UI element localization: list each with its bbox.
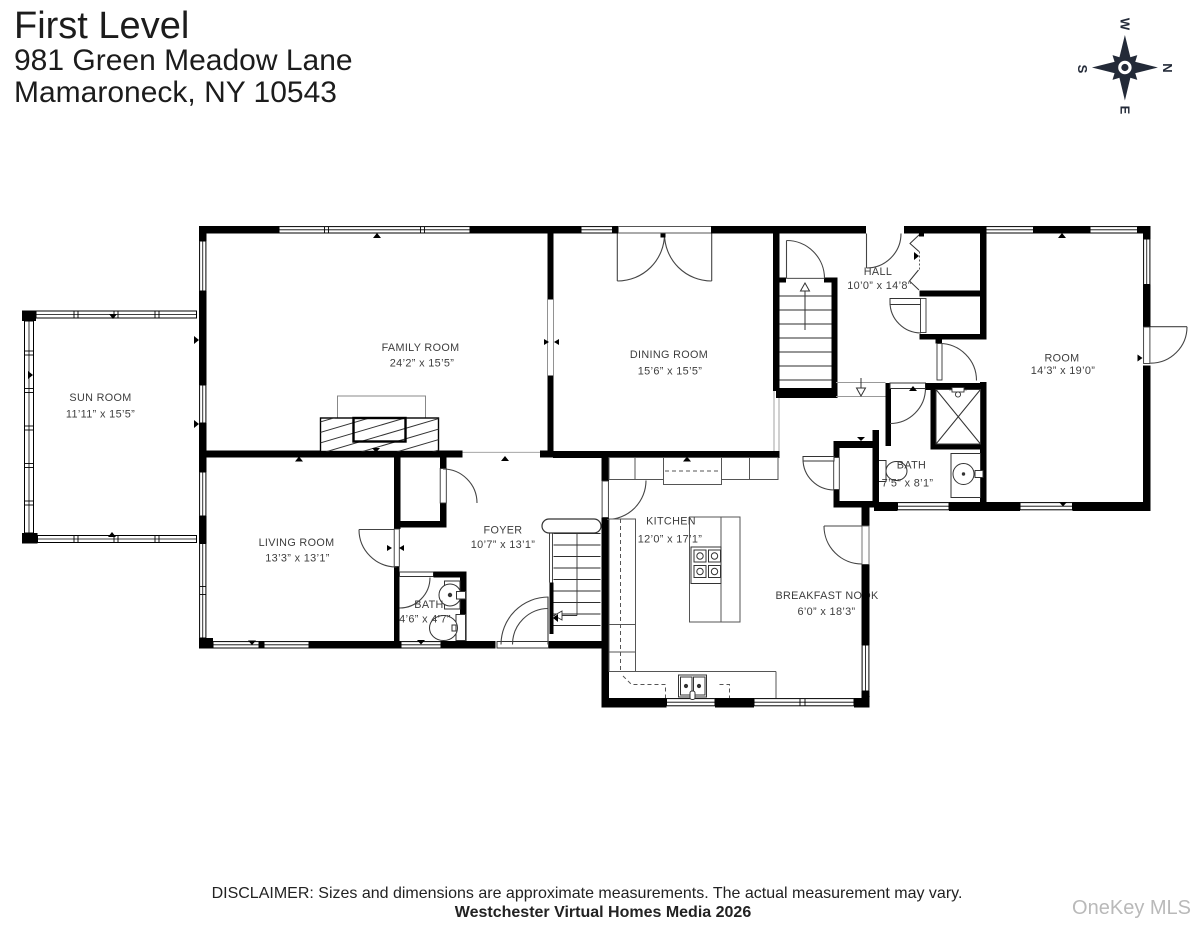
svg-text:LIVING ROOM: LIVING ROOM bbox=[259, 537, 335, 549]
svg-text:DINING ROOM: DINING ROOM bbox=[630, 349, 708, 361]
svg-text:Westchester Virtual Homes Medi: Westchester Virtual Homes Media 2026 bbox=[455, 904, 752, 921]
svg-text:First Level: First Level bbox=[14, 5, 189, 47]
svg-text:W: W bbox=[1118, 18, 1133, 31]
svg-text:4’6” x 4’7”: 4’6” x 4’7” bbox=[399, 614, 451, 626]
svg-text:24’2” x 15’5”: 24’2” x 15’5” bbox=[390, 358, 455, 370]
svg-text:10’0” x 14’8”: 10’0” x 14’8” bbox=[847, 280, 912, 292]
svg-text:FAMILY ROOM: FAMILY ROOM bbox=[382, 342, 460, 354]
svg-text:981 Green Meadow Lane: 981 Green Meadow Lane bbox=[14, 44, 353, 77]
svg-text:10’7” x 13’1”: 10’7” x 13’1” bbox=[471, 539, 536, 551]
svg-text:13’3” x 13’1”: 13’3” x 13’1” bbox=[265, 553, 330, 565]
svg-text:BATH: BATH bbox=[897, 460, 926, 472]
svg-text:11’11” x 15’5”: 11’11” x 15’5” bbox=[66, 409, 135, 421]
svg-text:SUN ROOM: SUN ROOM bbox=[69, 392, 131, 404]
svg-text:OneKey MLS: OneKey MLS bbox=[1072, 897, 1191, 919]
svg-text:7’5” x 8’1”: 7’5” x 8’1” bbox=[882, 478, 934, 490]
svg-text:FOYER: FOYER bbox=[484, 525, 523, 537]
svg-text:12’0” x 17’1”: 12’0” x 17’1” bbox=[638, 534, 703, 546]
svg-text:DISCLAIMER: Sizes and dimensio: DISCLAIMER: Sizes and dimensions are app… bbox=[212, 885, 963, 902]
svg-text:15’6” x 15’5”: 15’6” x 15’5” bbox=[638, 366, 703, 378]
svg-text:Mamaroneck, NY 10543: Mamaroneck, NY 10543 bbox=[14, 76, 337, 109]
svg-text:N: N bbox=[1160, 63, 1175, 72]
svg-text:ROOM: ROOM bbox=[1045, 353, 1080, 365]
svg-text:14’3” x 19’0”: 14’3” x 19’0” bbox=[1031, 365, 1096, 377]
svg-text:HALL: HALL bbox=[864, 266, 892, 278]
svg-text:S: S bbox=[1075, 65, 1090, 74]
svg-text:KITCHEN: KITCHEN bbox=[646, 516, 696, 528]
svg-text:E: E bbox=[1118, 106, 1133, 115]
svg-text:6’0” x 18’3”: 6’0” x 18’3” bbox=[797, 606, 855, 618]
svg-text:BATH: BATH bbox=[414, 599, 443, 611]
